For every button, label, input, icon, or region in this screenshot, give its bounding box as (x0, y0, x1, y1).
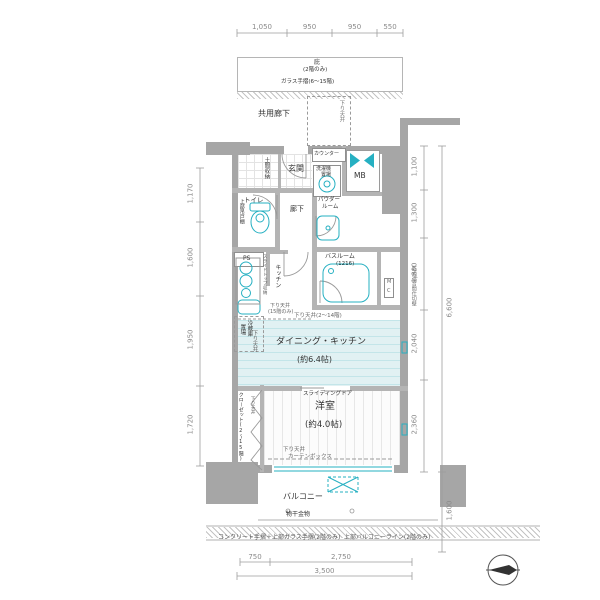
dim-bottom-2: 2,750 (270, 554, 412, 561)
bedroom-dropped-ceiling-label: 下り天井 (283, 447, 305, 453)
dim-right-2: 1,300 (412, 196, 419, 230)
partition (238, 386, 302, 391)
partition (275, 193, 280, 252)
eave-label: 庇 (314, 60, 320, 67)
counter-label: カウンター (314, 152, 339, 158)
partition (377, 252, 381, 305)
wall (238, 146, 284, 154)
partition (232, 188, 314, 193)
dim-left-2: 1,600 (188, 241, 195, 275)
hall-label: 廊下 (290, 205, 304, 213)
dim-left-3: 1,950 (188, 323, 195, 357)
wall (382, 146, 408, 214)
eave-note: (2階のみ) (303, 67, 327, 73)
dim-right-5: 2,360 (412, 408, 419, 442)
glass-rail-note: ガラス手摺(6〜15階) (281, 79, 334, 85)
meter-m-label: M (387, 280, 391, 286)
dim-bottom-1: 750 (240, 554, 270, 561)
closet-label: クローゼット(2〜15階) (237, 392, 243, 462)
railing-note-right: 上部バルコニーライン(2階のみ) (344, 535, 430, 542)
balcony-label: バルコニー (283, 492, 323, 501)
mb-label: MB (354, 172, 366, 181)
partition (342, 192, 382, 196)
slide-storage-label: スライドトップ収納 (262, 254, 267, 295)
dk-dropped-ceiling-label: 下り天井 (251, 330, 257, 352)
closet-dropped-ceiling-label: 下り天井 (250, 396, 255, 414)
dim-top-2: 950 (287, 24, 332, 31)
powder-label-1: パウダー (318, 197, 340, 203)
upper-cabinet-label: 上部吊戸棚 (238, 199, 244, 224)
bedroom-label: 洋室 (315, 401, 335, 413)
dim-left-1: 1,170 (188, 177, 195, 211)
dim-right-balcony: 1,600 (447, 494, 454, 528)
fridge-label-2: 置場 (239, 324, 245, 335)
upper-dropped-ceiling-label: 下り天井 (338, 100, 344, 122)
sliding-door-label: スライディングドア (303, 391, 352, 397)
wall (406, 118, 460, 125)
wall (238, 465, 272, 473)
partition (350, 386, 408, 391)
bath-label: バスルーム (325, 254, 355, 261)
floor-plan: 庇 (2階のみ) ガラス手摺(6〜15階) 共用廊下 下り天井 玄関 土間収納 … (0, 0, 600, 600)
common-corridor-label: 共用廊下 (258, 109, 290, 118)
railing-note-left: コンクリート手摺＋上部ガラス手摺(2階のみ) (218, 535, 340, 542)
dropped-ceiling-15f-label-2: (15階のみ) (268, 310, 293, 316)
ps-label: PS (243, 256, 250, 263)
dining-kitchen-label: ダイニング・キッチン (276, 337, 366, 347)
compass-icon (486, 555, 520, 585)
partition (312, 247, 400, 252)
dim-right-total: 6,600 (447, 291, 454, 325)
dim-top-1: 1,050 (237, 24, 287, 31)
wall (394, 465, 408, 473)
dim-left-4: 1,720 (188, 408, 195, 442)
partition (312, 305, 400, 310)
partition (278, 154, 281, 188)
dim-right-1: 1,100 (412, 150, 419, 184)
dim-top-3: 950 (332, 24, 377, 31)
bedroom-size-label: (約4.0帖) (305, 421, 342, 431)
genkan-label: 玄関 (288, 164, 304, 173)
kitchen-label: キッチン (273, 264, 280, 288)
bath-size-label: (1216) (336, 261, 354, 267)
powder-label-2: ルーム (322, 204, 338, 210)
drying-hardware-label: 物干金物 (286, 512, 310, 519)
upper-dropped-ceiling-box (307, 96, 351, 146)
wall (400, 214, 408, 472)
dim-bottom-total: 3,500 (237, 568, 412, 575)
washer-label-2: 置場 (321, 173, 331, 179)
partition (260, 385, 264, 472)
dim-top-4: 550 (377, 24, 403, 31)
toilet-label: トイレ (244, 197, 264, 204)
dim-right-3: 1,800 (412, 256, 419, 290)
dining-kitchen-size-label: (約6.4帖) (297, 355, 332, 364)
doma-storage-label: 土間収納 (263, 157, 269, 179)
dropped-ceiling-2-14f-label: 下り天井(2〜14階) (294, 313, 342, 319)
curtain-box-label: カーテンボックス (288, 454, 332, 460)
meter-c-label: C (387, 289, 391, 295)
dim-right-4: 2,040 (412, 327, 419, 361)
partition (268, 250, 288, 254)
